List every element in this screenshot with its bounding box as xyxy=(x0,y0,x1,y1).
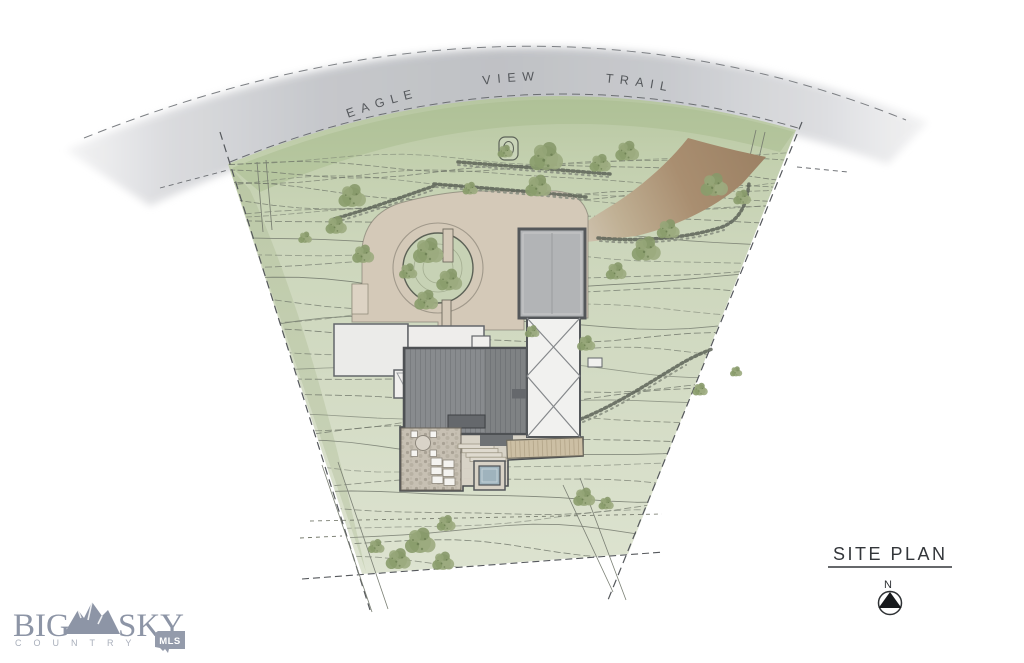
equipment-pad xyxy=(588,358,602,367)
site-plan-canvas: EAGLE VIEW TRAIL xyxy=(0,0,1024,663)
lounge-chairs xyxy=(431,458,455,486)
north-arrow-icon xyxy=(879,592,902,615)
north-label: N xyxy=(884,579,893,591)
mls-badge-label: MLS xyxy=(159,636,181,647)
parking-pad xyxy=(352,284,368,314)
title-block: SITE PLAN N xyxy=(828,544,952,615)
tree xyxy=(730,366,742,376)
island-walkway xyxy=(443,229,453,262)
wood-deck xyxy=(507,438,584,459)
garage-roof xyxy=(519,229,585,318)
west-wing-roof xyxy=(334,324,408,376)
survey-tick-northeast xyxy=(797,167,848,172)
logo-tagline: COUNTRY xyxy=(15,638,143,648)
hot-tub xyxy=(474,461,505,490)
site-plan-page: EAGLE VIEW TRAIL xyxy=(0,0,1024,663)
chimney xyxy=(448,415,485,428)
mountain-icon xyxy=(64,602,120,634)
entry-walkway xyxy=(442,300,451,326)
mls-badge: MLS xyxy=(155,631,185,653)
stone-patio xyxy=(401,428,461,490)
brand-logo: BIG SKY COUNTRY MLS xyxy=(13,602,185,653)
sheet-title: SITE PLAN xyxy=(833,544,948,564)
survey-tick-west xyxy=(300,536,342,538)
